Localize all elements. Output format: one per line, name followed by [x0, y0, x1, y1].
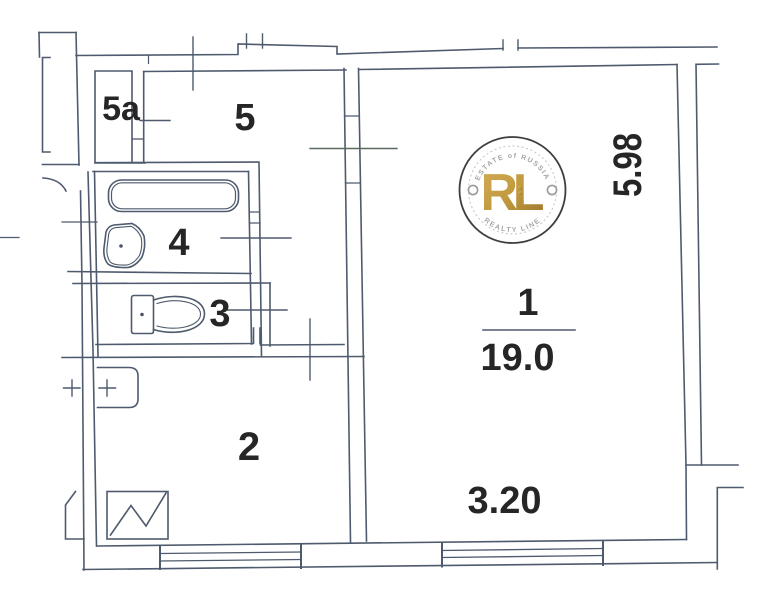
svg-text:1: 1: [517, 282, 538, 324]
svg-text:5a: 5a: [102, 90, 141, 128]
svg-text:4: 4: [168, 222, 189, 264]
svg-text:2: 2: [238, 425, 260, 469]
svg-text:RL: RL: [481, 164, 545, 222]
svg-text:3.20: 3.20: [468, 480, 542, 522]
svg-text:19.0: 19.0: [481, 337, 555, 379]
svg-text:5.98: 5.98: [606, 133, 650, 197]
svg-text:5: 5: [234, 97, 255, 139]
svg-text:3: 3: [209, 293, 230, 335]
